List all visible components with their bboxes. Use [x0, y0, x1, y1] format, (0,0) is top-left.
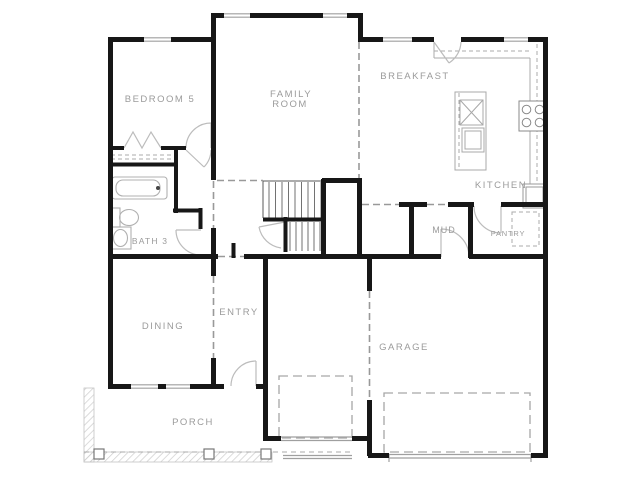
room-label-mud: MUD — [432, 225, 456, 235]
room-label-pantry: PANTRY — [491, 229, 526, 238]
kitchen-island — [455, 92, 486, 170]
stair-edge — [263, 181, 322, 218]
room-label-entry: ENTRY — [219, 307, 259, 318]
overhead-door-outline-double — [384, 393, 530, 452]
door-closet-bifold — [124, 132, 161, 148]
door-bedroom5 — [186, 123, 211, 148]
porch-deck — [84, 388, 352, 462]
window-kitchen — [504, 38, 528, 41]
range-icon — [519, 101, 547, 131]
exterior-walls — [108, 13, 548, 458]
porch-post — [261, 449, 271, 459]
overhead-door-outline-single — [279, 376, 352, 438]
door-breakfast-exterior — [434, 42, 461, 63]
porch-edge-bottom — [84, 452, 272, 462]
walls — [108, 13, 548, 458]
room-label-breakfast: BREAKFAST — [380, 71, 449, 82]
window-family-left — [224, 14, 250, 17]
bathtub-icon — [112, 177, 167, 199]
staircase — [263, 181, 322, 251]
stair-treads-lower — [290, 222, 320, 251]
island-sink-icon — [460, 100, 483, 125]
door-stair-closet — [259, 222, 285, 248]
floor-plan-drawing: BEDROOM 5 FAMILY ROOM BREAKFAST KITCHEN … — [0, 0, 640, 495]
windows — [131, 14, 528, 388]
room-label-garage: GARAGE — [379, 342, 429, 353]
room-label-bath3: BATH 3 — [132, 236, 168, 246]
room-label-porch: PORCH — [172, 417, 214, 428]
door-bath3 — [176, 230, 201, 255]
room-label-family-line2: ROOM — [272, 99, 308, 110]
floor-plan: BEDROOM 5 FAMILY ROOM BREAKFAST KITCHEN … — [0, 0, 640, 495]
porch-post — [94, 449, 104, 459]
room-label-kitchen: KITCHEN — [475, 180, 527, 191]
garage-door-double — [389, 454, 531, 462]
room-label-dining: DINING — [142, 321, 184, 332]
garage-doors — [281, 437, 531, 462]
room-label-bedroom5: BEDROOM 5 — [125, 94, 196, 105]
window-dining-right — [166, 385, 190, 388]
window-family-right — [323, 14, 347, 17]
dishwasher-icon — [462, 128, 484, 152]
porch-post — [204, 449, 214, 459]
window-dining-left — [131, 385, 158, 388]
driveway-apron-line — [283, 456, 352, 459]
porch-edge-left — [84, 388, 94, 462]
toilet-icon — [111, 208, 139, 227]
stair-treads-upper — [269, 182, 321, 218]
window-bedroom5 — [144, 38, 171, 41]
door-front-entry — [231, 361, 256, 386]
tub-faucet — [156, 186, 160, 190]
closet-rod-shelf — [111, 155, 175, 159]
door-hall — [186, 150, 211, 167]
window-breakfast — [383, 38, 412, 41]
vanity-sink-icon — [110, 227, 131, 249]
